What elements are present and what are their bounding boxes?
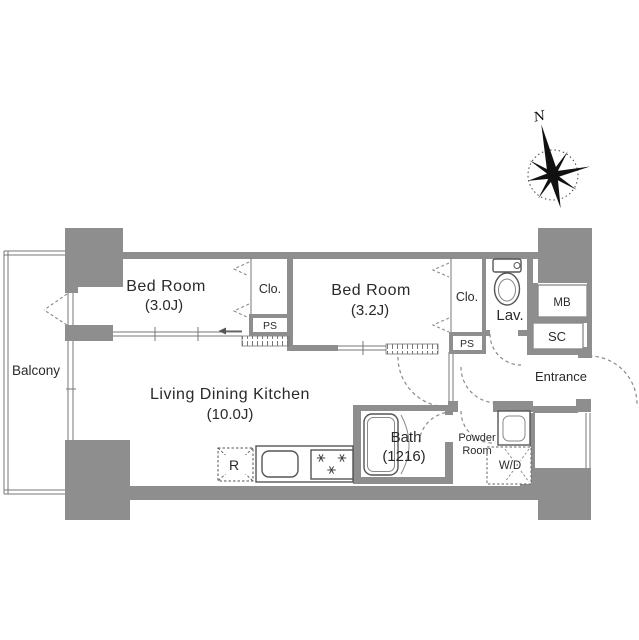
wall-bed2-south (292, 345, 338, 351)
closet1-label: Clo. (259, 282, 281, 296)
wall-lav-south-right (518, 330, 533, 336)
south-wall (65, 486, 538, 500)
lavatory-door-arc (490, 334, 521, 365)
pipe-space-1-label: PS (263, 320, 277, 332)
wall-mb-bottom (527, 317, 592, 323)
hatch-bedroom1 (242, 336, 289, 346)
bedroom1-size: (3.0J) (145, 297, 183, 314)
closet2-fold-door-top (433, 263, 449, 277)
bath-label: Bath (391, 429, 422, 446)
shoe-closet-label: SC (548, 329, 566, 344)
bath-size: (1216) (382, 448, 425, 465)
lavatory-label: Lav. (496, 307, 523, 324)
closet2-label: Clo. (456, 290, 478, 304)
closet1-fold-door-bottom (234, 304, 249, 318)
closet2-fold-door-bottom (433, 318, 449, 332)
bath-wall-south (353, 477, 453, 484)
ldk-window (66, 341, 76, 440)
wall-lav-entrance (527, 252, 533, 353)
kitchen-sink-icon (262, 451, 298, 477)
bedroom2-size: (3.2J) (351, 302, 389, 319)
ldk-label: Living Dining Kitchen (150, 386, 310, 403)
bedroom2-sliding-partition (338, 341, 386, 355)
hall-partition (449, 352, 453, 401)
entrance-door-jamb-bottom (576, 399, 591, 412)
bedroom2-label: Bed Room (331, 282, 411, 299)
refrigerator-label: R (229, 457, 239, 473)
powder-room-label-1: Powder (458, 432, 496, 444)
stove-icon (311, 450, 353, 479)
closet1-fold-door-top (234, 262, 249, 276)
toilet-icon (493, 259, 521, 305)
compass-north-label: N (531, 108, 547, 126)
wall-clo2-lav (482, 252, 486, 336)
pipe-space-2-label: PS (460, 338, 474, 350)
entrance-lower-wall (586, 413, 590, 468)
ldk-size: (10.0J) (207, 406, 254, 423)
bedroom1-label: Bed Room (126, 278, 206, 295)
hall-door-arc (398, 357, 448, 407)
pillar-bottom-right (538, 468, 591, 520)
compass-rose: N (513, 101, 598, 214)
north-wall (65, 252, 592, 259)
kitchen-counter (256, 446, 353, 482)
balcony-label: Balcony (12, 363, 60, 378)
meter-box-label: MB (553, 297, 571, 309)
bath-wall-west (353, 405, 361, 484)
washer-dryer-label: W/D (499, 460, 521, 472)
entrance-step (533, 406, 578, 413)
floor-plan-page: N Balcony Bed Room (3.0J) Bed Room (3.2J… (0, 0, 639, 640)
powder-room-label-2: Room (462, 445, 491, 457)
bedroom1-window (68, 293, 73, 325)
wall-sc-bottom (527, 349, 583, 355)
slide-direction-arrow (219, 328, 243, 335)
entrance-door-arc (589, 356, 637, 404)
bath-door-arc (419, 412, 452, 445)
bath-wall-east-bottom (445, 442, 453, 484)
floor-plan-svg: N Balcony Bed Room (3.0J) Bed Room (3.2J… (0, 0, 639, 640)
bedroom1-window-swing (44, 294, 67, 325)
pillar-bottom-left (65, 440, 130, 520)
hall-powder-door-arc (461, 367, 497, 403)
west-wall-stub (65, 325, 113, 341)
hatch-bedroom2 (386, 344, 438, 354)
powder-sink-icon (498, 411, 530, 445)
west-wall-piece (65, 287, 78, 293)
bath-wall-east-top (445, 405, 453, 415)
entrance-label: Entrance (535, 369, 587, 384)
